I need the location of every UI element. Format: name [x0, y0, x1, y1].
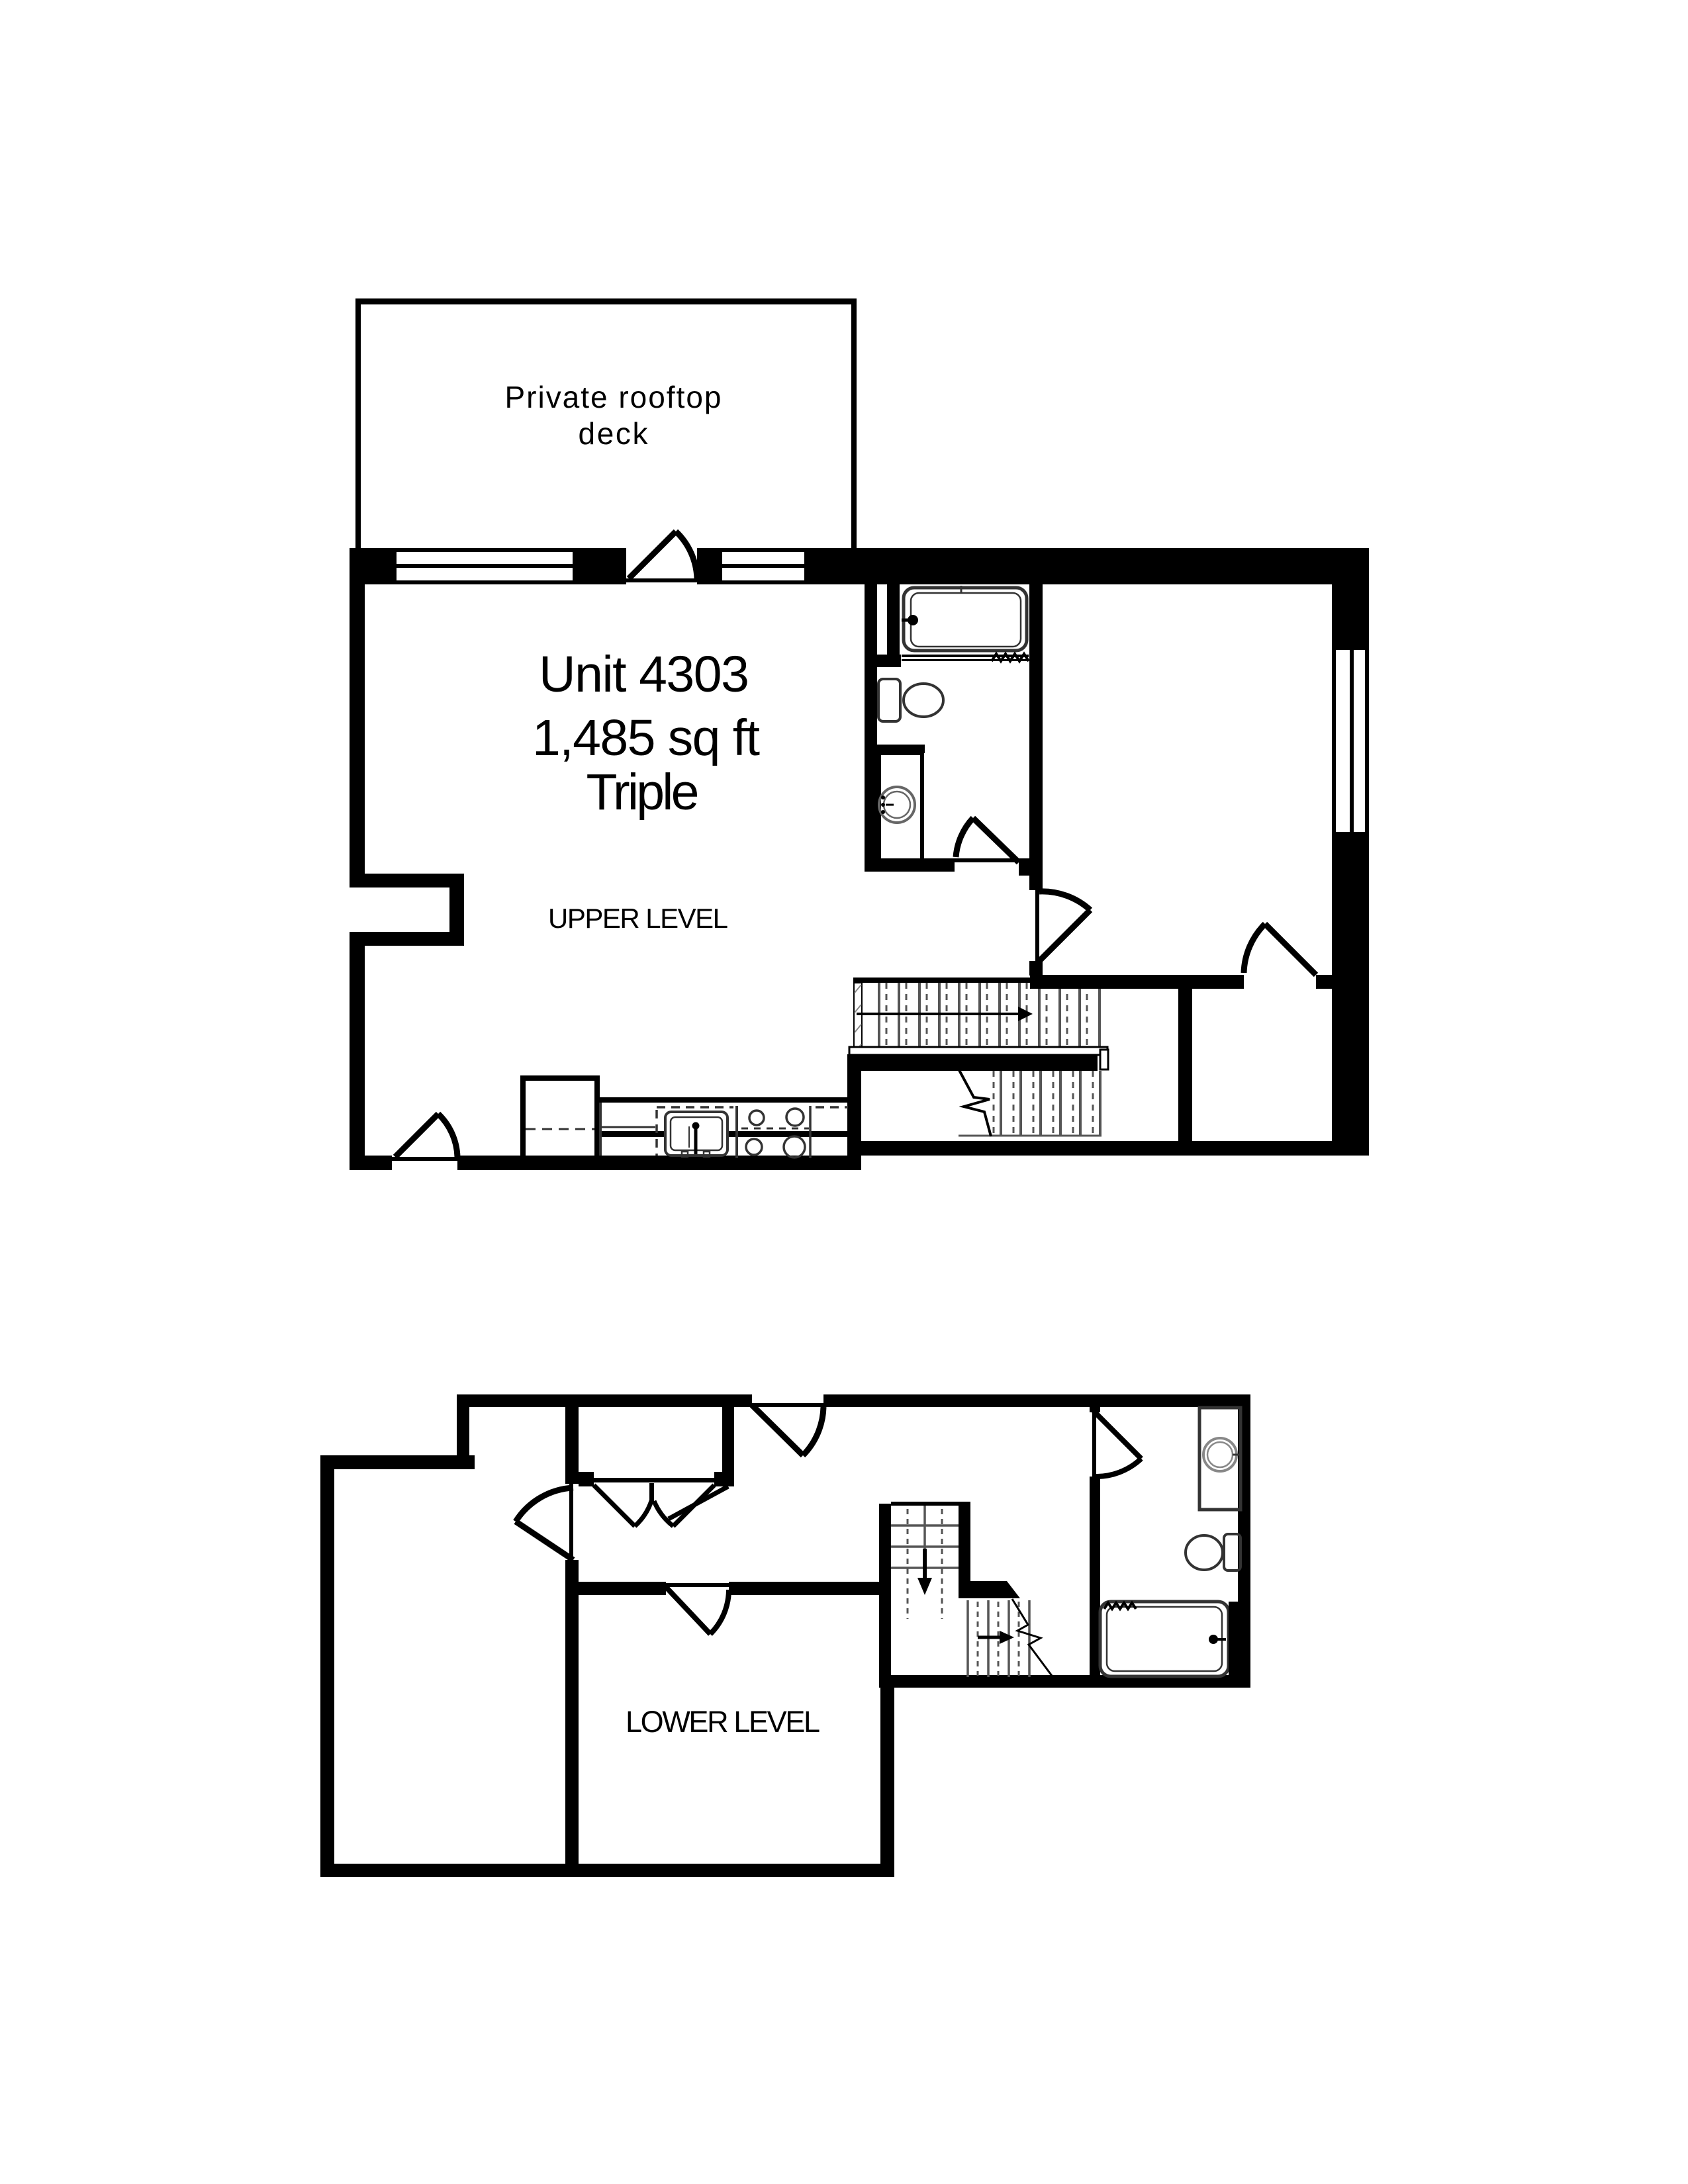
svg-text:deck: deck — [579, 416, 649, 451]
svg-text:Private rooftop: Private rooftop — [505, 380, 722, 414]
svg-text:Triple: Triple — [586, 764, 700, 821]
svg-text:Unit 4303: Unit 4303 — [539, 646, 749, 703]
svg-text:1,485 sq ft: 1,485 sq ft — [532, 709, 760, 766]
svg-text:LOWER LEVEL: LOWER LEVEL — [626, 1705, 820, 1739]
svg-text:UPPER LEVEL: UPPER LEVEL — [548, 903, 728, 934]
